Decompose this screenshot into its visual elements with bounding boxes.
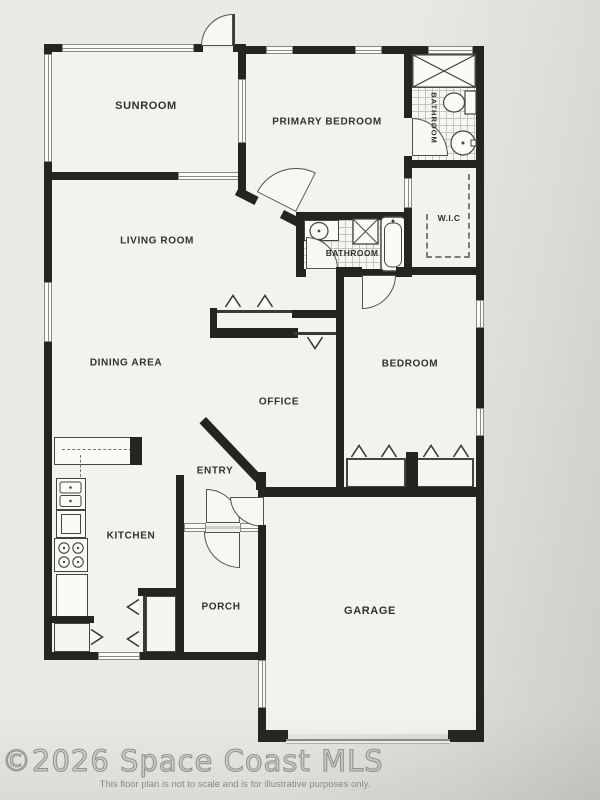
upper-cabinet-line — [80, 455, 81, 477]
wall — [44, 44, 52, 54]
closet-rod — [426, 214, 429, 258]
wall — [336, 267, 344, 490]
closet — [54, 623, 90, 652]
bifold-door-icon — [224, 294, 242, 308]
window — [44, 282, 52, 342]
wall — [138, 588, 184, 596]
bifold-door-icon — [90, 628, 104, 646]
bifold-door-icon — [452, 444, 470, 458]
toilet-icon — [442, 89, 478, 116]
dishwasher-inner — [61, 514, 81, 534]
closet-door-line — [216, 310, 292, 313]
wall — [210, 328, 298, 338]
refrigerator — [56, 574, 88, 618]
wall — [412, 160, 484, 168]
sidelight-window — [184, 523, 206, 532]
room-label-primary-bathroom: BATHROOM — [430, 92, 439, 144]
sink-icon — [449, 129, 477, 157]
bifold-door-icon — [306, 336, 324, 350]
bifold-door-icon — [126, 598, 140, 616]
stove-burners-icon — [56, 540, 86, 570]
wall — [476, 436, 484, 742]
closet-rod — [468, 174, 471, 258]
room-label-porch: PORCH — [201, 602, 240, 613]
wall — [416, 46, 428, 54]
room-label-primary-bedroom: PRIMARY BEDROOM — [272, 117, 382, 128]
bifold-door-icon — [126, 630, 140, 648]
wall — [176, 475, 184, 655]
window — [258, 660, 266, 708]
bifold-door-icon — [350, 444, 368, 458]
room-label-kitchen: KITCHEN — [107, 531, 156, 542]
bifold-door-icon — [422, 444, 440, 458]
wall — [238, 44, 246, 79]
wall — [476, 328, 484, 408]
cased-opening — [404, 178, 412, 208]
window — [238, 79, 246, 143]
wall — [293, 46, 355, 54]
window — [62, 44, 194, 52]
wall — [382, 46, 416, 54]
room-label-dining-area: DINING AREA — [90, 358, 162, 369]
window — [428, 46, 473, 54]
wall — [476, 50, 484, 300]
closet-rod — [426, 256, 470, 259]
window — [476, 300, 484, 328]
wall — [292, 310, 338, 318]
wall — [246, 46, 266, 54]
floor-plan: SUNROOM PRIMARY BEDROOM BATHROOM W.I.C L… — [0, 0, 600, 800]
bathtub-icon — [380, 216, 406, 272]
window — [44, 54, 52, 162]
shower-icon — [412, 54, 476, 88]
wall — [404, 267, 484, 275]
wall — [130, 437, 142, 465]
wall — [44, 652, 98, 660]
wall — [404, 54, 412, 118]
window — [355, 46, 382, 54]
wall — [404, 156, 412, 178]
wall — [262, 487, 480, 497]
upper-cabinet-line — [62, 449, 132, 450]
closet-door-line — [143, 596, 146, 652]
door-swing-icon — [201, 14, 233, 46]
room-label-living-room: LIVING ROOM — [120, 236, 194, 247]
wall — [238, 143, 246, 193]
wall — [296, 269, 306, 277]
window — [476, 408, 484, 436]
room-label-wic: W.I.C — [438, 213, 461, 223]
sink-basin-icon — [59, 481, 83, 508]
room-label-office: OFFICE — [259, 397, 299, 408]
room-label-garage: GARAGE — [344, 605, 396, 617]
window — [266, 46, 293, 54]
bifold-door-icon — [380, 444, 398, 458]
wall — [396, 267, 406, 275]
closet — [346, 458, 406, 488]
wall — [44, 162, 52, 282]
kitchen-counter — [54, 437, 142, 465]
closet-door-line — [294, 332, 336, 335]
wall — [258, 487, 266, 497]
room-label-sunroom: SUNROOM — [115, 100, 177, 112]
wall — [140, 652, 262, 660]
wall — [52, 616, 94, 623]
photo-shadow — [0, 710, 600, 800]
room-label-hall-bathroom: BATHROOM — [326, 248, 379, 258]
room-label-bedroom: BEDROOM — [382, 359, 438, 370]
room-label-entry: ENTRY — [197, 466, 234, 477]
toilet-icon — [352, 218, 379, 245]
closet — [146, 596, 176, 652]
bifold-door-icon — [256, 294, 274, 308]
wall — [406, 452, 418, 490]
door-threshold — [206, 526, 240, 529]
window — [178, 172, 240, 180]
wall — [44, 342, 52, 660]
closet — [416, 458, 474, 488]
wall — [258, 525, 266, 660]
window — [98, 652, 140, 660]
wall — [52, 172, 178, 180]
